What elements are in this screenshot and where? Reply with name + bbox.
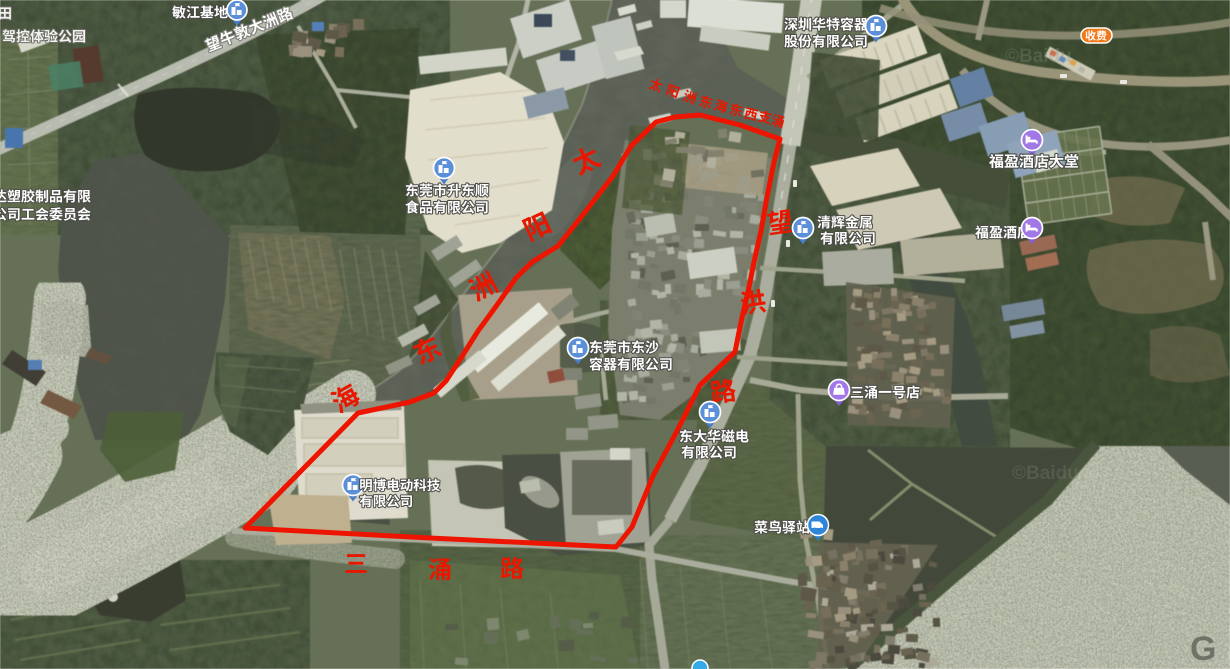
svg-text:©Baidu: ©Baidu <box>1005 46 1072 67</box>
svg-text:©Baidu: ©Baidu <box>1012 463 1079 484</box>
svg-text:G: G <box>1190 630 1216 668</box>
